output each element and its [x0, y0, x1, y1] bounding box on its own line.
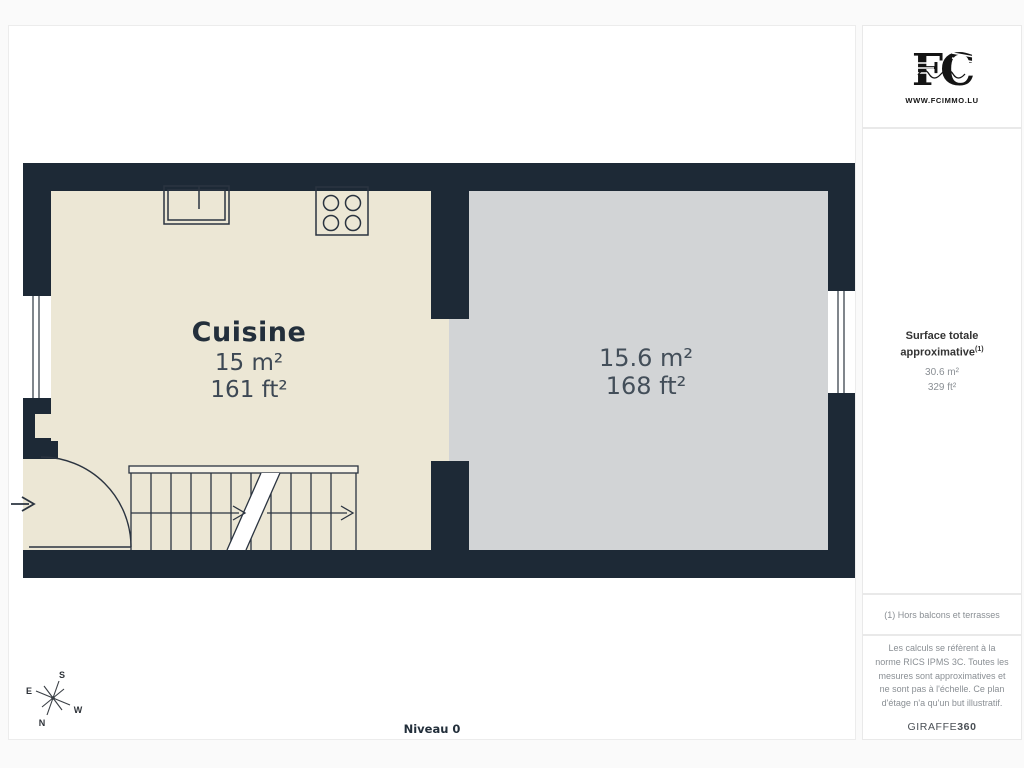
window-right	[828, 291, 855, 393]
surface-title: Surface totale approximative(1)	[863, 329, 1021, 360]
brand-name: GIRAFFE	[907, 721, 957, 733]
floorplan-panel: S E W N Cuisine 15 m² 161 ft² 15.6 m² 16…	[8, 25, 856, 740]
brand-suffix: 360	[957, 721, 976, 733]
surface-total-ft2: 329 ft²	[928, 382, 956, 393]
surface-title-footnote-ref: (1)	[975, 346, 984, 353]
room-area-ft2: 161 ft²	[149, 377, 349, 404]
footnote-text: (1) Hors balcons et terrasses	[884, 610, 1000, 620]
room-area-m2: 15 m²	[149, 350, 349, 377]
surface-total-m2: 30.6 m²	[925, 367, 959, 378]
agency-logo: FC WWW.FCIMMO.LU	[890, 41, 994, 113]
logo-monogram: FC	[912, 45, 973, 96]
compass-west-label: W	[74, 705, 83, 715]
logo-url-text: WWW.FCIMMO.LU	[905, 96, 978, 105]
compass-east-label: E	[26, 686, 32, 696]
compass-icon: S E W N	[26, 670, 83, 728]
compass-south-label: S	[59, 670, 65, 680]
room-label-room2: 15.6 m² 168 ft²	[546, 344, 746, 400]
giraffe360-brand: GIRAFFE360	[907, 721, 976, 733]
level-label: Niveau 0	[9, 722, 855, 736]
wall-niche	[35, 414, 51, 438]
disclaimer-box: Les calculs se réfèrent à la norme RICS …	[862, 635, 1022, 740]
footnote-box: (1) Hors balcons et terrasses	[862, 594, 1022, 635]
agency-logo-box: FC WWW.FCIMMO.LU	[862, 25, 1022, 128]
surface-title-text: Surface totale approximative	[900, 330, 978, 359]
floorplan-page: S E W N Cuisine 15 m² 161 ft² 15.6 m² 16…	[0, 0, 1024, 768]
room-area-ft2: 168 ft²	[546, 372, 746, 400]
window-left	[23, 296, 51, 398]
surface-summary-box: Surface totale approximative(1) 30.6 m² …	[862, 128, 1022, 594]
room-label-cuisine: Cuisine 15 m² 161 ft²	[149, 316, 349, 404]
room-name: Cuisine	[149, 316, 349, 350]
room-area-m2: 15.6 m²	[546, 344, 746, 372]
disclaimer-text: Les calculs se réfèrent à la norme RICS …	[875, 642, 1009, 712]
